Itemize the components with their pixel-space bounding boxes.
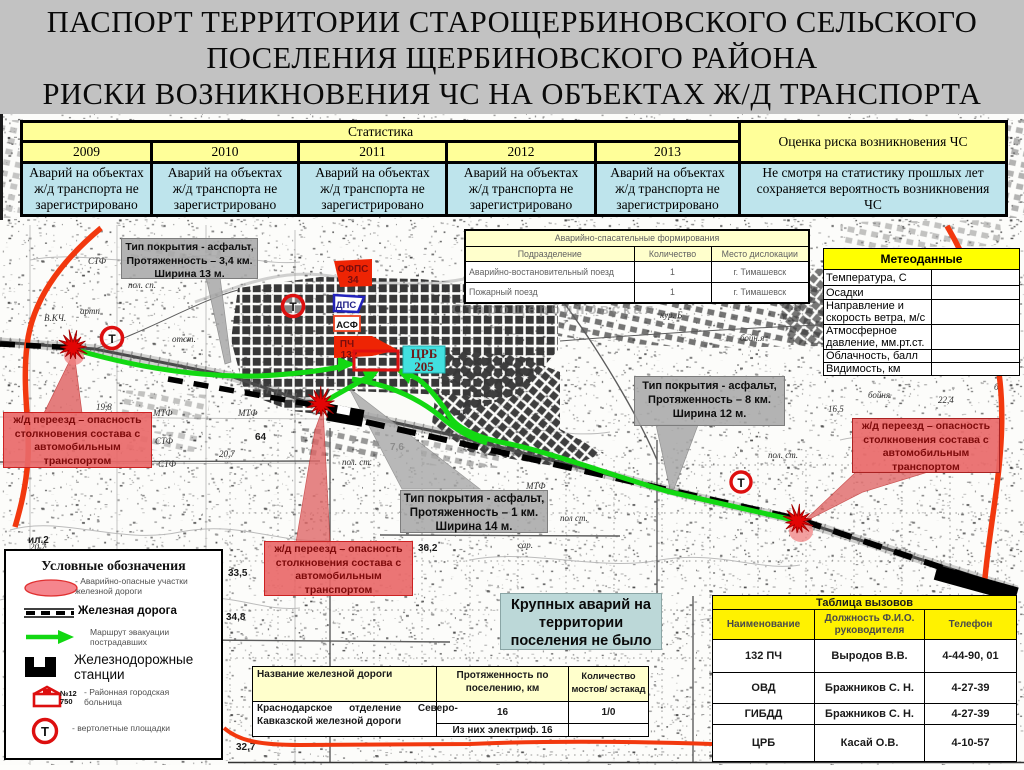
svg-text:АСФ: АСФ: [336, 320, 358, 331]
svg-text:Т: Т: [289, 300, 297, 314]
svg-text:205: 205: [414, 359, 434, 374]
svg-text:Т: Т: [737, 476, 745, 490]
svg-text:ПЧ: ПЧ: [340, 339, 354, 350]
svg-text:Т: Т: [108, 332, 116, 346]
svg-text:Т: Т: [41, 724, 49, 739]
svg-text:34: 34: [347, 275, 359, 286]
svg-text:ДПС: ДПС: [336, 300, 357, 311]
svg-text:ОФПС: ОФПС: [338, 264, 369, 275]
